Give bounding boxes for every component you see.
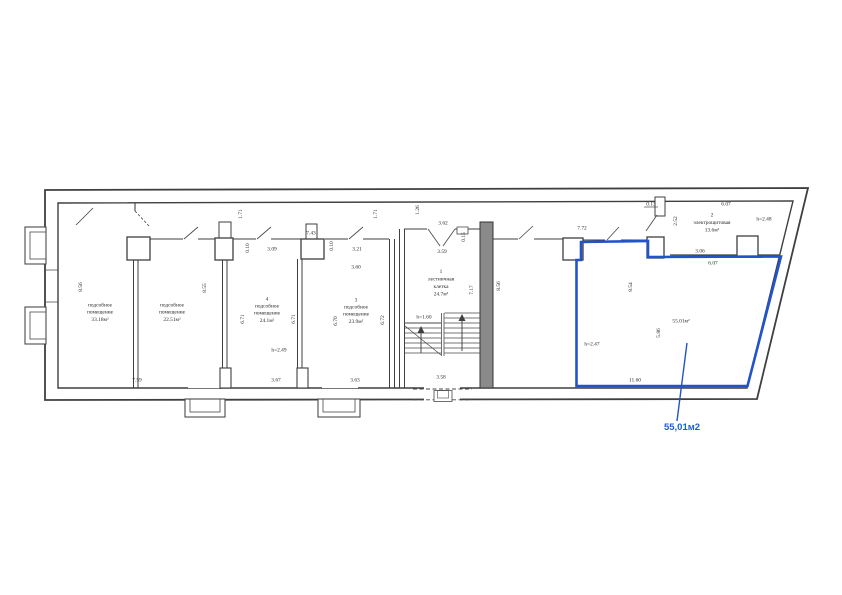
room-3-label: 3 подсобное помещение 23.9м² — [343, 298, 370, 326]
room-name: помещение — [87, 310, 114, 316]
room-area: 55.01м² — [672, 319, 690, 325]
dim-label: 3.58 — [436, 375, 446, 381]
dim-label: 3.59 — [437, 249, 447, 255]
ceiling-height-label: h=2.48 — [756, 217, 771, 223]
dim-label: 6.71 — [240, 314, 246, 324]
dim-label: 3.67 — [271, 378, 281, 384]
pillar — [297, 368, 308, 388]
room-name: подсобное — [344, 304, 369, 311]
ceiling-height-label: h=2.47 — [584, 342, 599, 348]
callout-leader-line — [677, 343, 687, 421]
dim-label: 3.06 — [695, 249, 705, 255]
room-name: помещение — [159, 310, 186, 316]
room-name: подсобное — [88, 302, 113, 309]
room-number: 3 — [355, 298, 358, 304]
dim-label: 8.55 — [202, 283, 208, 293]
left-wall-bays — [25, 227, 58, 344]
dim-label: 7.43 — [306, 231, 316, 237]
dim-label: 0.13 — [646, 202, 656, 208]
dim-label: 1.71 — [238, 209, 244, 219]
pillar — [737, 236, 758, 257]
dim-label: 8.56 — [496, 281, 502, 291]
room-name: помещение — [343, 312, 370, 318]
bottom-porches — [185, 387, 472, 418]
room-name: клетка — [434, 284, 450, 290]
room-storage-a-label: подсобное помещение 33.18м² — [87, 302, 114, 324]
vent-shaft — [655, 197, 665, 216]
room-area: 24.1м² — [260, 318, 275, 324]
dim-label: 11.60 — [629, 378, 641, 384]
highlighted-area — [577, 241, 782, 421]
electrical-room-label: 2 электрощитовая 13.6м² h=2.48 — [693, 213, 771, 234]
dim-label: 2.52 — [673, 216, 679, 226]
highlighted-room-label: 55.01м² h=2.47 — [584, 319, 690, 348]
dim-label: 7.59 — [132, 378, 142, 384]
pillar — [220, 368, 231, 388]
pillar — [215, 238, 233, 260]
area-callout: 55,01м2 — [664, 422, 700, 433]
dim-label: 3.63 — [350, 378, 360, 384]
dim-label: 3.62 — [438, 221, 448, 227]
dim-label: 8.54 — [628, 282, 634, 292]
dim-label: 0.10 — [245, 243, 251, 253]
dim-label: 3.60 — [351, 265, 361, 271]
floor-plan-drawing: 8.56 7.59 1.71 8.55 0.10 3.09 6.71 7.43 … — [0, 0, 842, 595]
room-number: 1 — [440, 269, 443, 275]
dim-label: 6.70 — [333, 316, 339, 326]
room-area: 24.7м² — [434, 292, 449, 298]
pillar — [647, 237, 664, 258]
room-name: подсобное — [160, 302, 185, 309]
ceiling-height-label: h=2.49 — [271, 348, 286, 354]
dim-label: 7.17 — [469, 285, 475, 295]
room-name: помещение — [254, 311, 281, 317]
room-name: лестничная — [428, 277, 455, 283]
dim-label: 3.21 — [352, 247, 362, 253]
room-area: 33.18м² — [91, 317, 109, 323]
room-storage-b-label: подсобное помещение 22.51м² — [159, 302, 186, 324]
dim-label: 0.15 — [461, 232, 467, 242]
scanned-floorplan-page: 8.56 7.59 1.71 8.55 0.10 3.09 6.71 7.43 … — [0, 0, 842, 595]
dim-label: 8.56 — [78, 282, 84, 292]
stair-height-label: h=1.60 — [416, 315, 431, 321]
dim-label: 6.07 — [721, 202, 731, 208]
room-area: 13.6м² — [705, 228, 720, 234]
room-name: электрощитовая — [693, 220, 731, 226]
stairs — [404, 313, 480, 356]
blue-highlight-outline — [577, 241, 782, 386]
dim-label: 1.71 — [373, 209, 379, 219]
dim-label: 5.86 — [656, 328, 662, 338]
stairwell-right-wall — [480, 222, 493, 388]
room-4-label: 4 подсобное помещение 24.1м² h=2.49 — [254, 297, 287, 354]
dim-label: 6.07 — [708, 261, 718, 267]
chimney — [219, 222, 231, 238]
room-name: подсобное — [255, 303, 280, 310]
dim-label: 3.09 — [267, 247, 277, 253]
dim-label: 6.72 — [380, 315, 386, 325]
room-number: 4 — [266, 297, 269, 303]
room-area: 22.51м² — [163, 317, 181, 323]
pillar — [301, 239, 324, 259]
pillar — [127, 237, 150, 260]
dim-label: 6.71 — [291, 314, 297, 324]
dim-label: 0.10 — [329, 241, 335, 251]
room-number: 2 — [711, 213, 714, 219]
dim-label: 1.26 — [415, 205, 421, 215]
room-area: 23.9м² — [349, 319, 364, 325]
dim-label: 7.72 — [577, 226, 587, 232]
